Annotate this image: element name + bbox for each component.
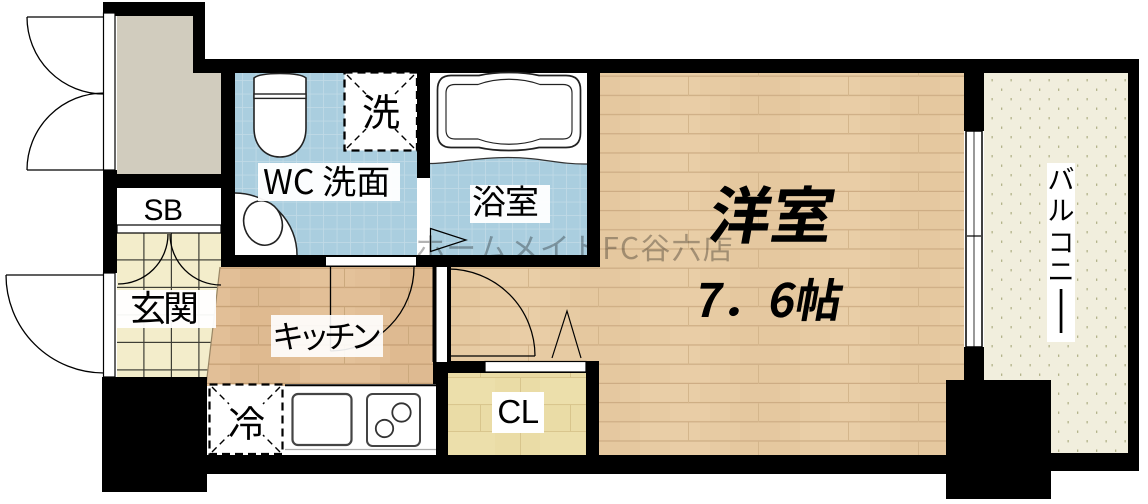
svg-text:CL: CL: [497, 393, 538, 430]
svg-text:SB: SB: [143, 194, 182, 227]
